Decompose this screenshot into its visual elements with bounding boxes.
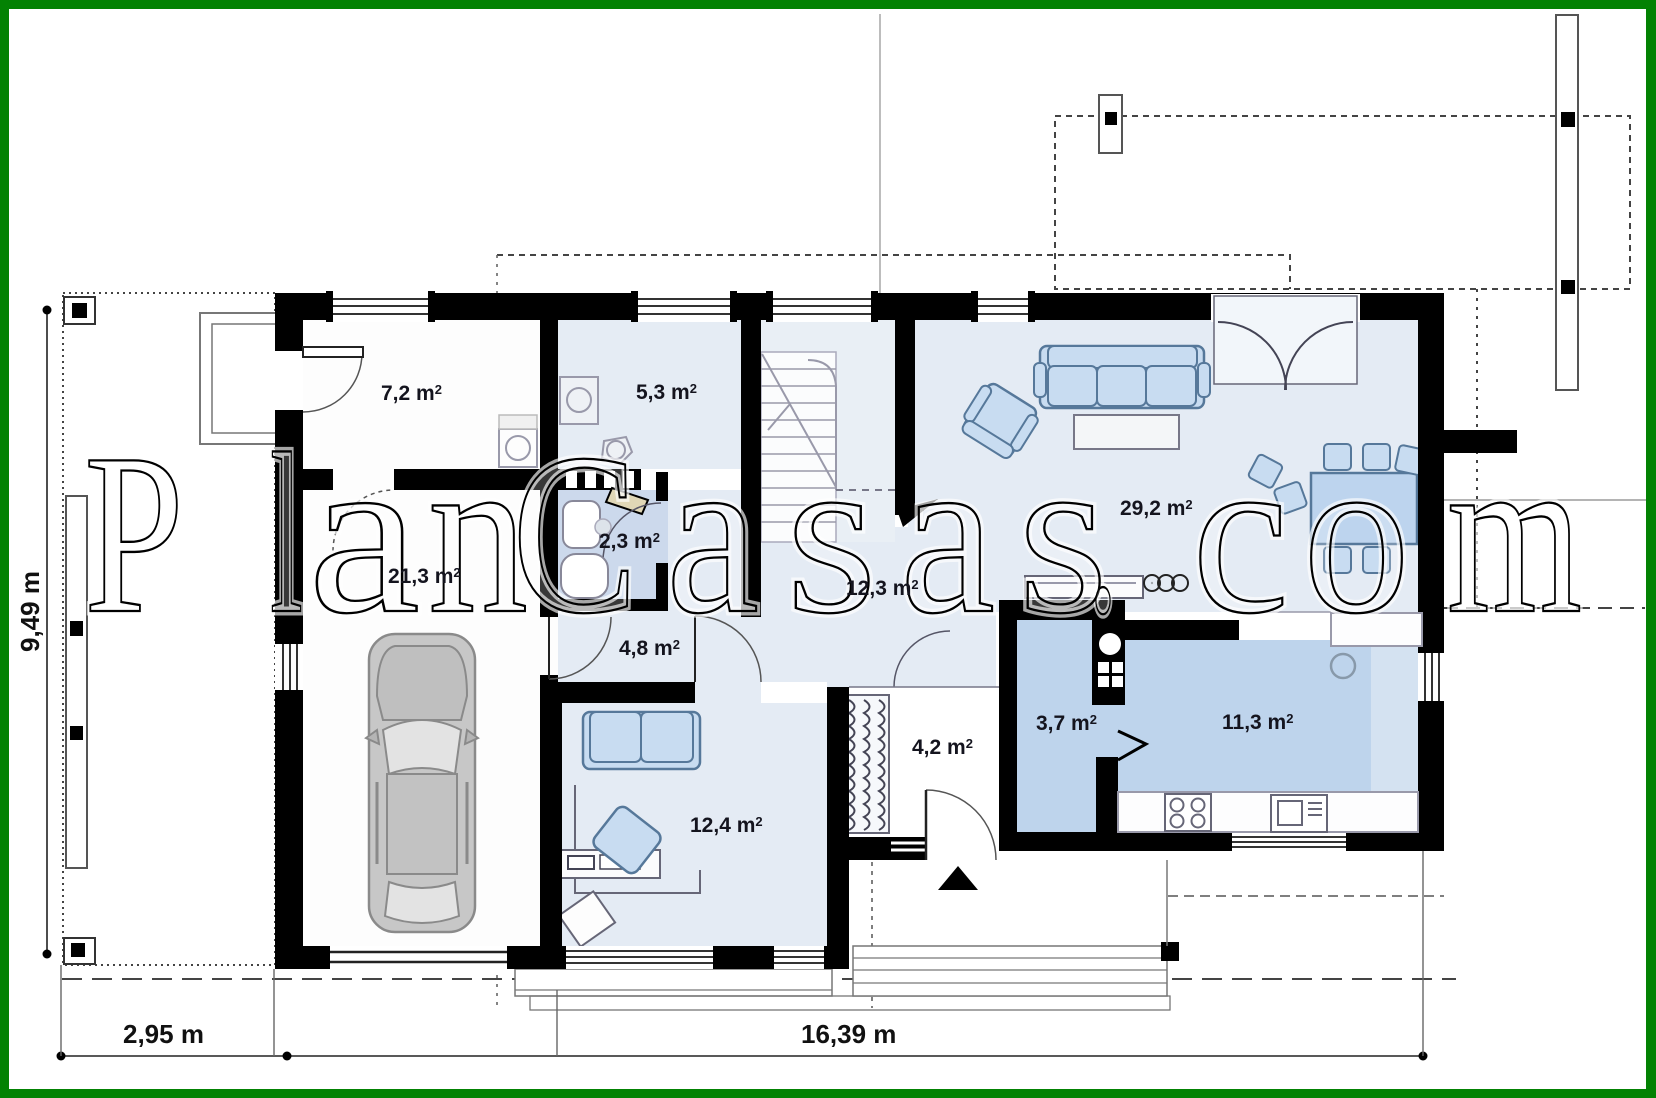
svg-text:l: l bbox=[270, 406, 303, 661]
svg-text:12,4 m2: 12,4 m2 bbox=[690, 814, 763, 837]
svg-text:29,2 m2: 29,2 m2 bbox=[1120, 497, 1193, 520]
svg-text:4,2 m2: 4,2 m2 bbox=[912, 736, 973, 759]
svg-text:16,39 m: 16,39 m bbox=[801, 1019, 896, 1049]
svg-text:a: a bbox=[308, 406, 420, 661]
svg-text:.: . bbox=[1088, 406, 1118, 661]
svg-text:9,49 m: 9,49 m bbox=[15, 571, 45, 652]
svg-text:P: P bbox=[84, 406, 184, 661]
svg-text:12,3 m2: 12,3 m2 bbox=[846, 577, 919, 600]
svg-text:7,2 m2: 7,2 m2 bbox=[381, 382, 442, 405]
svg-text:c: c bbox=[1192, 406, 1289, 661]
svg-text:2,3 m2: 2,3 m2 bbox=[599, 530, 660, 553]
svg-text:o: o bbox=[1303, 406, 1410, 661]
svg-text:4,8 m2: 4,8 m2 bbox=[619, 637, 680, 660]
svg-text:3,7 m2: 3,7 m2 bbox=[1036, 712, 1097, 735]
svg-text:21,3 m2: 21,3 m2 bbox=[388, 565, 461, 588]
svg-text:5,3 m2: 5,3 m2 bbox=[636, 381, 697, 404]
svg-text:2,95 m: 2,95 m bbox=[123, 1019, 204, 1049]
svg-text:m: m bbox=[1447, 406, 1582, 661]
svg-text:11,3 m2: 11,3 m2 bbox=[1222, 711, 1293, 734]
svg-text:a: a bbox=[900, 406, 995, 661]
svg-text:s: s bbox=[786, 406, 877, 661]
svg-text:a: a bbox=[666, 406, 759, 661]
